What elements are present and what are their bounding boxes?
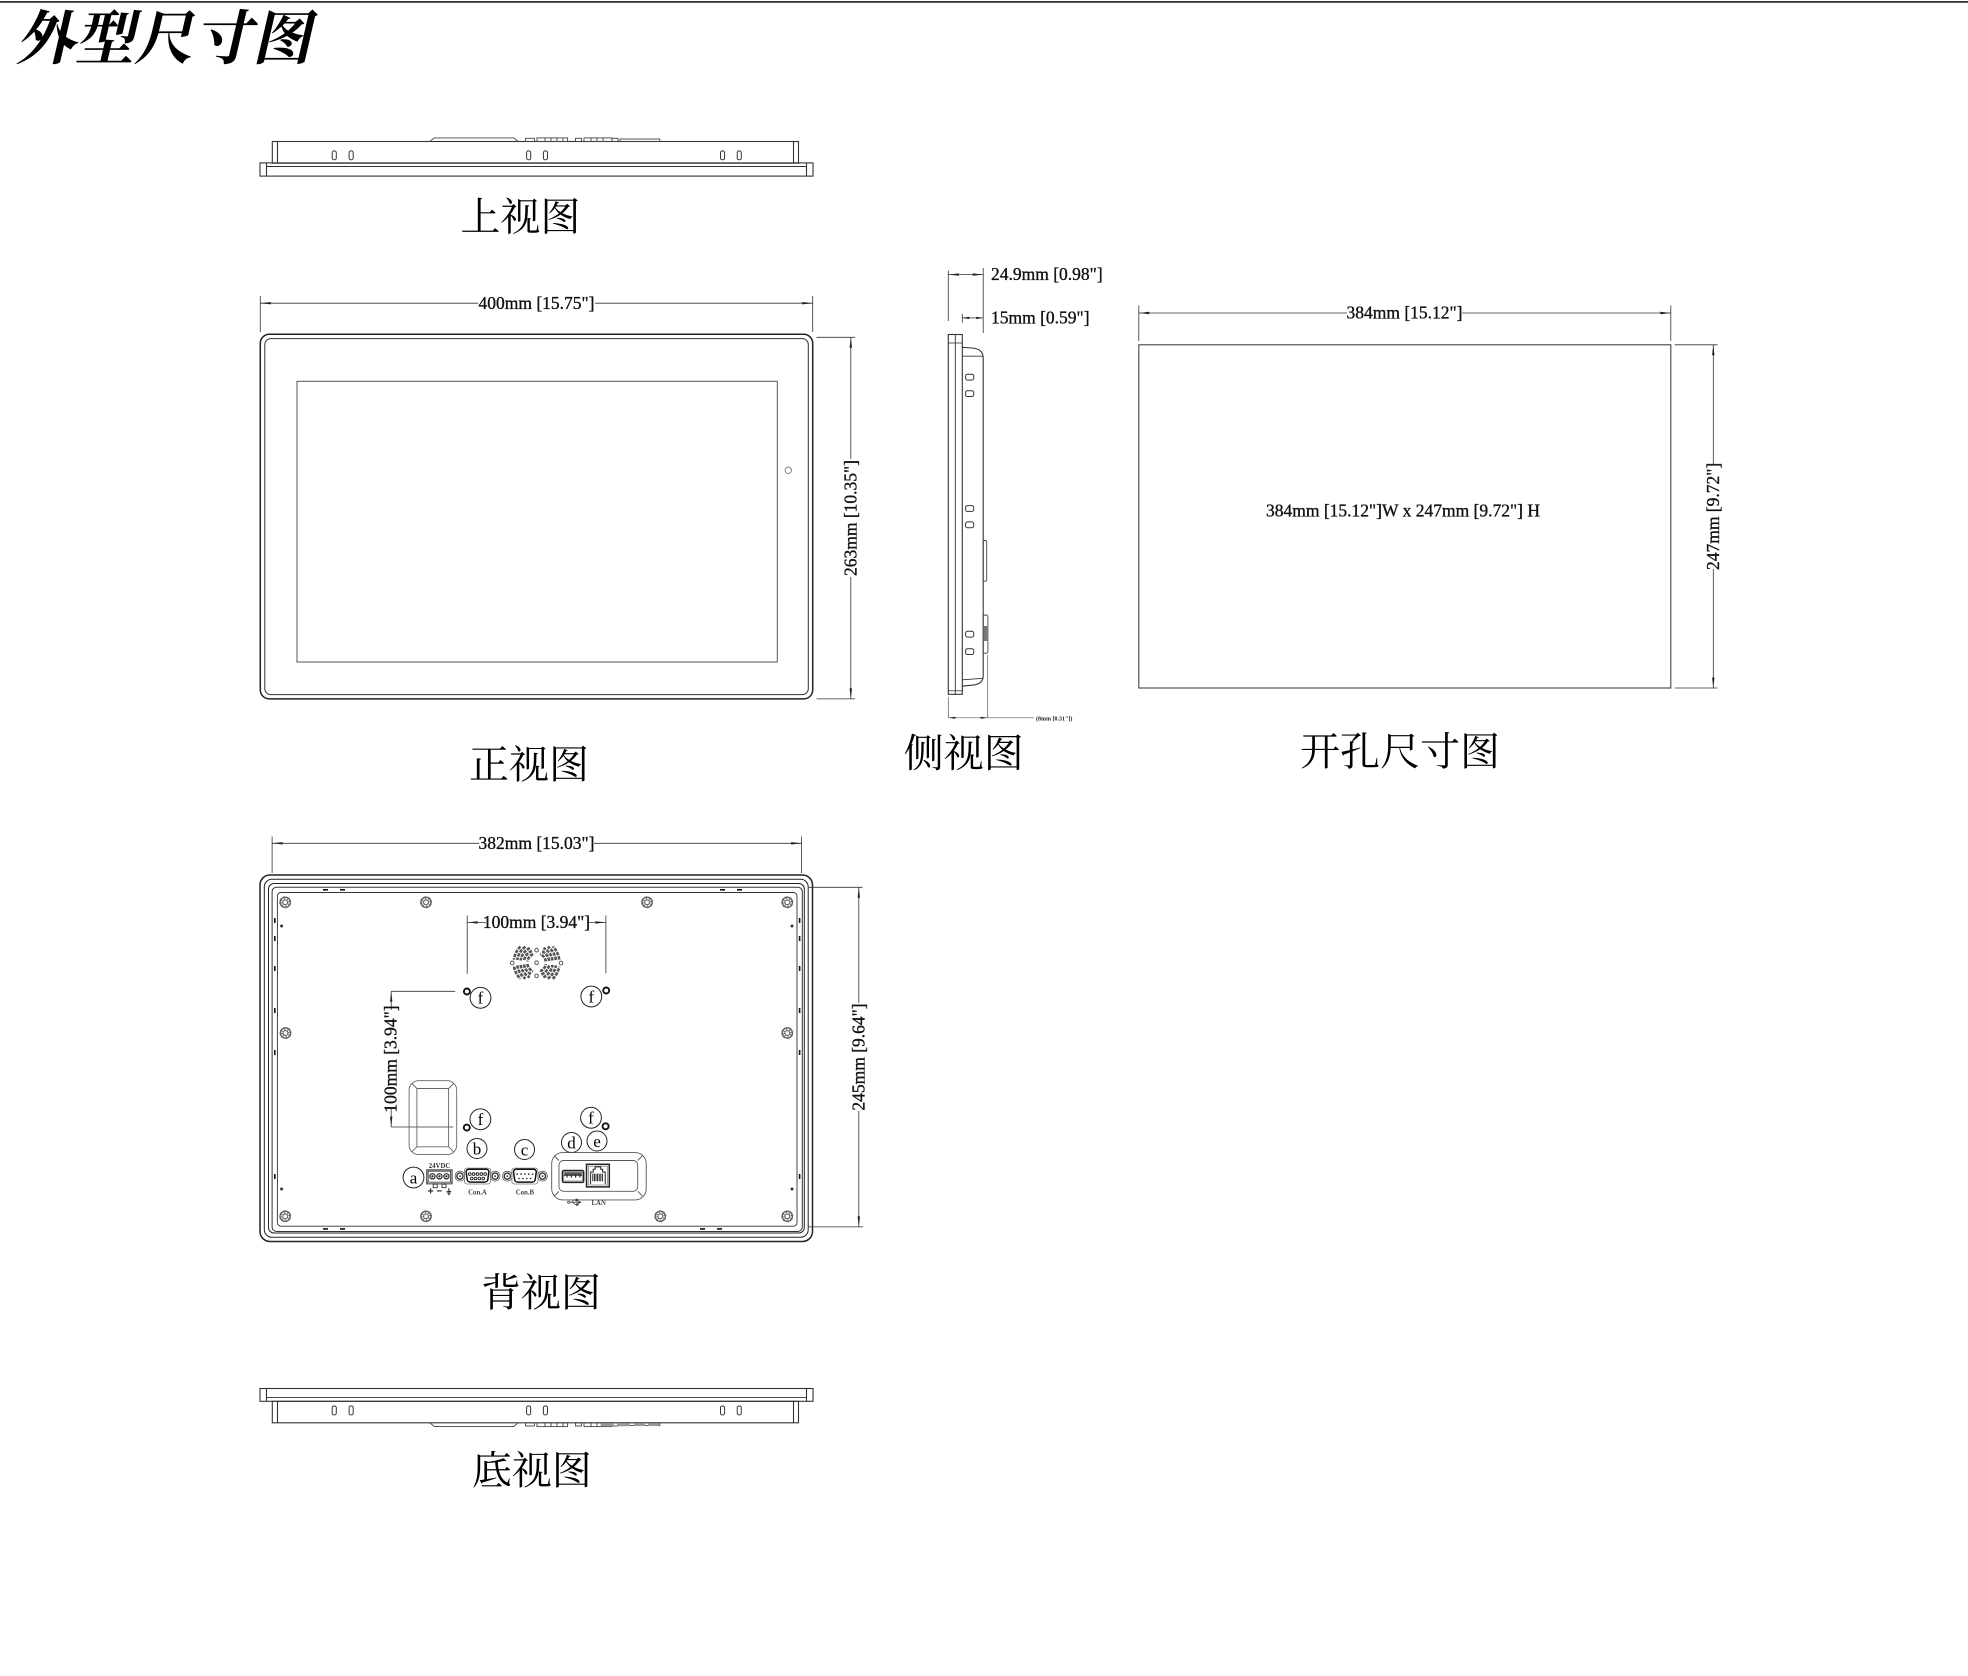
svg-text:Con.A: Con.A: [468, 1189, 487, 1196]
svg-text:384mm [15.12"]: 384mm [15.12"]: [1346, 303, 1462, 323]
svg-text:(8mm [0.31"]): (8mm [0.31"]): [1036, 715, 1072, 722]
svg-text:24VDC: 24VDC: [429, 1163, 451, 1170]
svg-text:b: b: [473, 1139, 482, 1158]
svg-text:100mm [3.94"]: 100mm [3.94"]: [483, 912, 590, 932]
svg-text:382mm [15.03"]: 382mm [15.03"]: [478, 833, 594, 853]
svg-text:e: e: [593, 1132, 601, 1151]
svg-text:f: f: [478, 1110, 484, 1129]
svg-text:24.9mm [0.98"]: 24.9mm [0.98"]: [991, 264, 1103, 284]
svg-text:a: a: [410, 1168, 418, 1187]
svg-text:LAN: LAN: [592, 1200, 606, 1207]
svg-text:f: f: [588, 987, 594, 1006]
svg-text:400mm [15.75"]: 400mm [15.75"]: [478, 293, 594, 313]
svg-text:Con.B: Con.B: [516, 1189, 535, 1196]
svg-text:15mm [0.59"]: 15mm [0.59"]: [991, 308, 1090, 328]
svg-text:245mm [9.64"]: 245mm [9.64"]: [848, 1003, 868, 1110]
svg-text:263mm [10.35"]: 263mm [10.35"]: [840, 460, 860, 576]
svg-text:247mm [9.72"]: 247mm [9.72"]: [1703, 463, 1723, 570]
svg-text:f: f: [478, 989, 484, 1008]
svg-text:d: d: [567, 1133, 576, 1152]
svg-text:f: f: [588, 1109, 594, 1128]
svg-text:384mm [15.12"]W x 247mm [9.72": 384mm [15.12"]W x 247mm [9.72"] H: [1266, 501, 1540, 521]
svg-text:100mm [3.94"]: 100mm [3.94"]: [381, 1005, 401, 1112]
svg-text:c: c: [521, 1140, 529, 1159]
